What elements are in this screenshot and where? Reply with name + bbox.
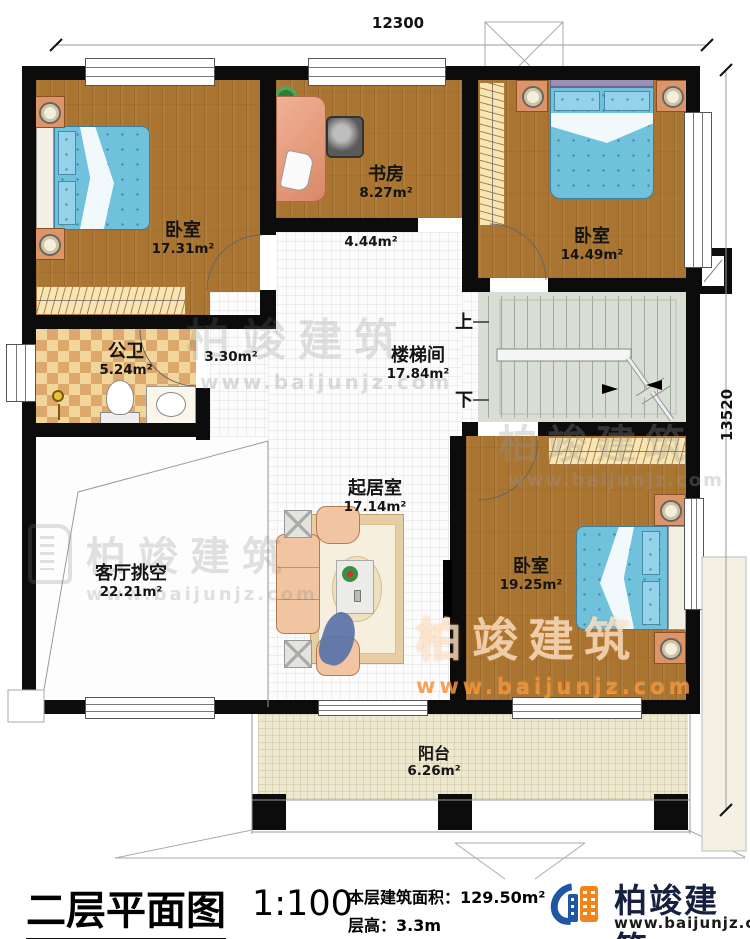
wardrobe bbox=[548, 437, 686, 465]
stair-treads bbox=[488, 296, 680, 418]
wall bbox=[462, 66, 478, 292]
wall bbox=[22, 402, 36, 714]
side-roof bbox=[702, 557, 746, 851]
room-label-balcony: 阳台 6.26m² bbox=[407, 745, 460, 779]
room-label-bedroom-top-right: 卧室 14.49m² bbox=[561, 227, 624, 263]
computer-icon bbox=[326, 116, 364, 158]
logo-tower-blue bbox=[568, 894, 578, 922]
stairs-down-label: 下 bbox=[455, 386, 473, 412]
brand-logo-icon bbox=[552, 876, 606, 930]
window bbox=[512, 697, 642, 719]
balcony-floor bbox=[258, 714, 688, 800]
dimension-right: 13520 bbox=[718, 389, 736, 441]
flower-vase-icon bbox=[342, 566, 358, 582]
brand-website: www.baijunjz.com bbox=[614, 914, 750, 932]
room-label-corridor: 3.30m² bbox=[204, 349, 257, 365]
wardrobe bbox=[479, 82, 505, 226]
wall bbox=[22, 700, 85, 714]
room-label-study: 书房 8.27m² bbox=[359, 165, 412, 201]
floor-area-text: 本层建筑面积：129.50m² bbox=[348, 884, 545, 908]
drawing-scale: 1:100 bbox=[252, 884, 353, 924]
floor-plan: 卧室 17.31m² 书房 8.27m² 4.44m² 卧室 14.49m² 公… bbox=[0, 0, 750, 939]
room-label-sitting-room: 起居室 17.14m² bbox=[344, 479, 407, 515]
window bbox=[85, 58, 215, 86]
pillow bbox=[642, 581, 660, 625]
wall bbox=[260, 290, 276, 329]
wall bbox=[548, 278, 700, 292]
wall bbox=[686, 268, 700, 498]
lamp-icon bbox=[660, 500, 682, 522]
remote bbox=[354, 590, 361, 602]
wall bbox=[446, 66, 700, 80]
floor-drain-stem bbox=[58, 404, 60, 420]
door-gap bbox=[260, 235, 276, 290]
room-label-living-void: 客厅挑空 22.21m² bbox=[95, 564, 167, 600]
lamp-icon bbox=[662, 86, 684, 108]
pillow bbox=[58, 181, 76, 225]
pillow bbox=[58, 131, 76, 175]
wall bbox=[276, 218, 418, 232]
door-gap bbox=[478, 422, 538, 436]
wall bbox=[260, 66, 276, 235]
stairs-up-label: 上 bbox=[455, 308, 473, 334]
wall bbox=[22, 315, 260, 329]
door-gap bbox=[490, 278, 548, 292]
door-gap bbox=[418, 218, 462, 232]
bed-headboard bbox=[36, 126, 54, 230]
tv bbox=[443, 560, 452, 618]
pillow bbox=[642, 531, 660, 575]
window bbox=[684, 112, 712, 268]
wall bbox=[30, 66, 85, 80]
wall bbox=[538, 422, 700, 436]
room-label-bedroom-top-left: 卧室 17.31m² bbox=[152, 221, 215, 257]
window bbox=[684, 498, 704, 610]
balcony-column bbox=[252, 794, 286, 830]
room-label-bathroom: 公卫 5.24m² bbox=[99, 342, 152, 378]
side-table bbox=[284, 510, 312, 538]
side-table bbox=[284, 640, 312, 668]
wall bbox=[450, 436, 466, 700]
wall bbox=[642, 700, 700, 714]
lamp-icon bbox=[39, 234, 61, 256]
lamp-icon bbox=[522, 86, 544, 108]
room-label-hall: 4.44m² bbox=[344, 234, 397, 250]
pillow bbox=[554, 91, 600, 111]
wall bbox=[686, 610, 700, 714]
logo-tower-orange bbox=[580, 886, 598, 922]
drawing-title: 二层平面图 bbox=[26, 878, 226, 939]
sofa bbox=[276, 534, 320, 634]
lamp-icon bbox=[39, 102, 61, 124]
wall bbox=[36, 423, 210, 437]
balcony-sliding-door bbox=[318, 700, 428, 716]
wardrobe bbox=[36, 286, 186, 315]
wall bbox=[462, 422, 478, 436]
brand-logo: 柏竣建筑 www.baijunjz.com bbox=[552, 874, 742, 934]
window bbox=[308, 58, 446, 86]
wall bbox=[686, 66, 700, 112]
floor-drain-icon bbox=[52, 390, 64, 402]
wall bbox=[215, 700, 318, 714]
room-label-stairwell: 楼梯间 17.84m² bbox=[387, 346, 450, 382]
room-label-bedroom-bottom-right: 卧室 19.25m² bbox=[500, 557, 563, 593]
window bbox=[6, 344, 36, 402]
toilet-bowl bbox=[106, 380, 134, 415]
sink-icon bbox=[156, 392, 186, 417]
wall bbox=[478, 278, 490, 292]
floor-height-text: 层高：3.3m bbox=[348, 912, 441, 936]
window bbox=[85, 697, 215, 719]
balcony-column bbox=[438, 794, 472, 830]
dimension-top: 12300 bbox=[372, 14, 424, 32]
pillow bbox=[604, 91, 650, 111]
wall bbox=[22, 66, 36, 344]
wall bbox=[428, 700, 512, 714]
balcony-column bbox=[654, 794, 688, 830]
lamp-icon bbox=[660, 638, 682, 660]
